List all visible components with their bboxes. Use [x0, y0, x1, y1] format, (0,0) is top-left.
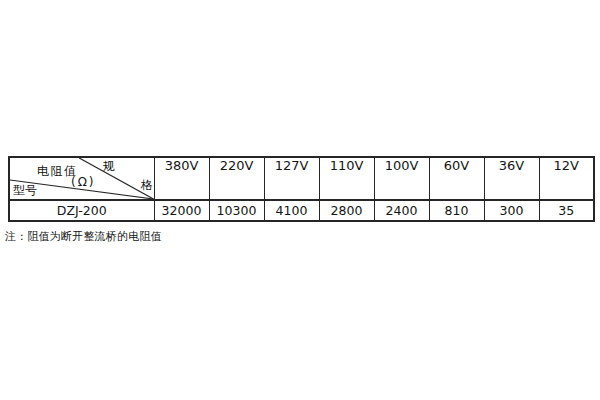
- resistance-value-cell: 32000: [154, 200, 209, 221]
- corner-model-label: 型号: [13, 184, 37, 198]
- voltage-header-100v: 100V: [374, 157, 429, 200]
- voltage-header-110v: 110V: [319, 157, 374, 200]
- resistance-value-cell: 10300: [209, 200, 264, 221]
- voltage-header-60v: 60V: [429, 157, 484, 200]
- resistance-value-cell: 2800: [319, 200, 374, 221]
- resistance-value-cell: 2400: [374, 200, 429, 221]
- voltage-header-380v: 380V: [154, 157, 209, 200]
- resistance-value-cell: 810: [429, 200, 484, 221]
- resistance-spec-table: 规 格 电阻值 (Ω) 型号 380V 220V 127V 110V 100V …: [8, 156, 595, 222]
- table-data-row: DZJ-200 32000 10300 4100 2800 2400 810 3…: [9, 200, 594, 221]
- voltage-header-12v: 12V: [539, 157, 594, 200]
- note-text: 注：阻值为断开整流桥的电阻值: [5, 229, 162, 244]
- corner-spec-char-top: 规: [103, 160, 115, 174]
- voltage-header-36v: 36V: [484, 157, 539, 200]
- table-header-row: 规 格 电阻值 (Ω) 型号 380V 220V 127V 110V 100V …: [9, 157, 594, 200]
- resistance-value-cell: 4100: [264, 200, 319, 221]
- resistance-value-cell: 300: [484, 200, 539, 221]
- page: 规 格 电阻值 (Ω) 型号 380V 220V 127V 110V 100V …: [0, 0, 600, 400]
- spec-table-wrap: 规 格 电阻值 (Ω) 型号 380V 220V 127V 110V 100V …: [8, 156, 595, 222]
- model-cell: DZJ-200: [9, 200, 154, 221]
- corner-spec-char-bottom: 格: [141, 179, 153, 193]
- corner-resistance-unit: (Ω): [71, 176, 96, 190]
- resistance-value-cell: 35: [539, 200, 594, 221]
- diagonal-header-cell: 规 格 电阻值 (Ω) 型号: [9, 157, 154, 200]
- voltage-header-127v: 127V: [264, 157, 319, 200]
- voltage-header-220v: 220V: [209, 157, 264, 200]
